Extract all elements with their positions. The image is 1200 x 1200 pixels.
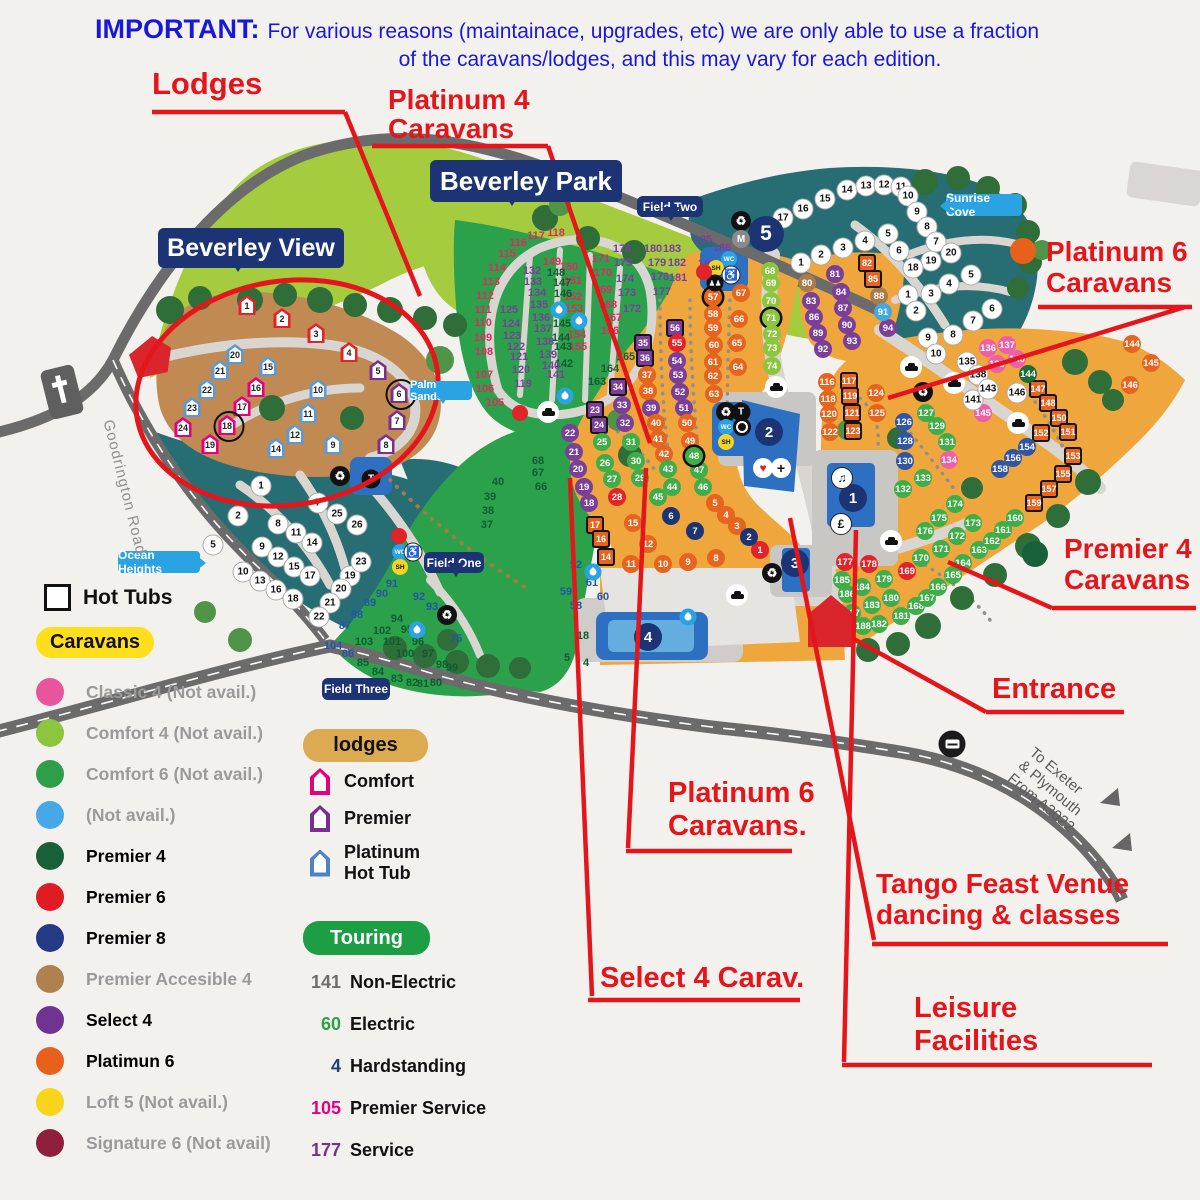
touring-legend-label: Premier Service: [350, 1098, 486, 1119]
caravan-color-swatch: [36, 678, 64, 706]
banner-palm-sands: Palm Sands: [410, 381, 472, 400]
caravan-legend-item: Premier Accesible 4: [36, 965, 271, 993]
caravan-color-swatch: [36, 1129, 64, 1157]
caravan-legend-label: Premier Accesible 4: [86, 969, 252, 990]
annotation-leisure: LeisureFacilities: [914, 992, 1038, 1058]
legend-touring-list: 141Non-Electric60Electric4Hardstanding10…: [303, 972, 486, 1166]
premier4-color-dot: [1022, 541, 1048, 567]
caravan-legend-item: Select 4: [36, 1006, 271, 1034]
annotation-premier4: Premier 4Caravans: [1064, 533, 1192, 595]
caravan-legend-item: Premier 4: [36, 842, 271, 870]
touring-count: 105: [303, 1098, 341, 1119]
annotation-select4: Select 4 Carav.: [600, 962, 804, 994]
lodge-legend-label: Premier: [344, 808, 411, 829]
legend-hot-tubs: Hot Tubs: [44, 584, 172, 611]
touring-legend-label: Hardstanding: [350, 1056, 466, 1077]
caravan-color-swatch: [36, 719, 64, 747]
touring-legend-label: Service: [350, 1140, 414, 1161]
caravan-legend-item: (Not avail.): [36, 801, 271, 829]
caravan-legend-item: Loft 5 (Not avail.): [36, 1088, 271, 1116]
banner-beverley-view: Beverley View: [158, 228, 344, 268]
caravan-legend-label: Comfort 4 (Not avail.): [86, 723, 263, 744]
hot-tub-label: Hot Tubs: [83, 586, 172, 610]
banner-field-two: Field Two: [637, 196, 703, 217]
caravan-legend-label: Signature 6 (Not avail): [86, 1133, 271, 1154]
touring-legend-item: 141Non-Electric: [303, 972, 486, 998]
important-notice: IMPORTANT:For various reasons (maintaina…: [95, 16, 1125, 73]
caravan-legend-item: Premier 8: [36, 924, 271, 952]
caravan-legend-label: Select 4: [86, 1010, 152, 1031]
caravan-color-swatch: [36, 1047, 64, 1075]
hot-tub-swatch: [44, 584, 71, 611]
annotation-platinum6-bottom: Platinum 6Caravans.: [668, 777, 815, 843]
caravan-legend-item: Comfort 6 (Not avail.): [36, 760, 271, 788]
legend-caravans-title: Caravans: [36, 627, 154, 658]
caravan-color-swatch: [36, 924, 64, 952]
lodge-legend-item: PlatinumHot Tub: [310, 842, 420, 884]
park-map-page: 1051061071081091101111121131141151161171…: [0, 0, 1200, 1200]
legend-lodges-list: ComfortPremierPlatinumHot Tub: [310, 768, 420, 884]
lodge-legend-label: Comfort: [344, 771, 414, 792]
banner-field-one: Field One: [424, 552, 484, 573]
platinum6-color-dot: [1010, 238, 1036, 264]
lodge-legend-item: Premier: [310, 805, 420, 832]
lodge-house-icon: [310, 805, 330, 832]
annotation-platinum6-top: Platinum 6Caravans: [1046, 236, 1188, 298]
legend-touring-title: Touring: [303, 921, 430, 955]
caravan-legend-label: Premier 4: [86, 846, 166, 867]
caravan-color-swatch: [36, 801, 64, 829]
legend-caravans-list: Classic 4 (Not avail.)Comfort 4 (Not ava…: [36, 678, 271, 1157]
banner-ocean-heights: Ocean Heights: [118, 551, 200, 573]
caravan-legend-item: Signature 6 (Not avail): [36, 1129, 271, 1157]
caravan-legend-label: Classic 4 (Not avail.): [86, 682, 256, 703]
banner-field-three: Field Three: [322, 678, 390, 700]
touring-count: 4: [303, 1056, 341, 1077]
legend-lodges-title: lodges: [303, 729, 428, 762]
touring-legend-label: Electric: [350, 1014, 415, 1035]
caravan-legend-item: Platimun 6: [36, 1047, 271, 1075]
lodge-house-icon: [310, 768, 330, 795]
lodge-legend-item: Comfort: [310, 768, 420, 795]
touring-count: 60: [303, 1014, 341, 1035]
caravan-legend-label: Premier 6: [86, 887, 166, 908]
caravan-legend-item: Premier 6: [36, 883, 271, 911]
lodge-house-icon: [310, 850, 330, 877]
important-line1: For various reasons (maintainace, upgrad…: [267, 20, 1039, 43]
annotation-lodges: Lodges: [152, 68, 262, 100]
caravan-color-swatch: [36, 1088, 64, 1116]
annotation-tango-venue: Tango Feast Venuedancing & classes: [876, 868, 1129, 930]
caravan-legend-label: Premier 8: [86, 928, 166, 949]
touring-legend-item: 177Service: [303, 1140, 486, 1166]
caravan-color-swatch: [36, 842, 64, 870]
touring-count: 141: [303, 972, 341, 993]
touring-legend-item: 105Premier Service: [303, 1098, 486, 1124]
touring-legend-item: 60Electric: [303, 1014, 486, 1040]
caravan-color-swatch: [36, 760, 64, 788]
important-label: IMPORTANT:: [95, 14, 259, 44]
caravan-color-swatch: [36, 883, 64, 911]
annotation-platinum4: Platinum 4Caravans: [388, 85, 530, 143]
banner-beverley-park: Beverley Park: [430, 160, 622, 202]
caravan-legend-item: Classic 4 (Not avail.): [36, 678, 271, 706]
caravan-legend-label: Platimun 6: [86, 1051, 175, 1072]
lodge-legend-label: PlatinumHot Tub: [344, 842, 420, 884]
caravan-legend-item: Comfort 4 (Not avail.): [36, 719, 271, 747]
touring-count: 177: [303, 1140, 341, 1161]
touring-legend-item: 4Hardstanding: [303, 1056, 486, 1082]
touring-legend-label: Non-Electric: [350, 972, 456, 993]
caravan-color-swatch: [36, 1006, 64, 1034]
caravan-legend-label: (Not avail.): [86, 805, 175, 826]
caravan-color-swatch: [36, 965, 64, 993]
caravan-legend-label: Loft 5 (Not avail.): [86, 1092, 228, 1113]
caravan-legend-label: Comfort 6 (Not avail.): [86, 764, 263, 785]
annotation-entrance: Entrance: [992, 673, 1116, 705]
banner-sunrise-cove: Sunrise Cove: [946, 194, 1022, 216]
